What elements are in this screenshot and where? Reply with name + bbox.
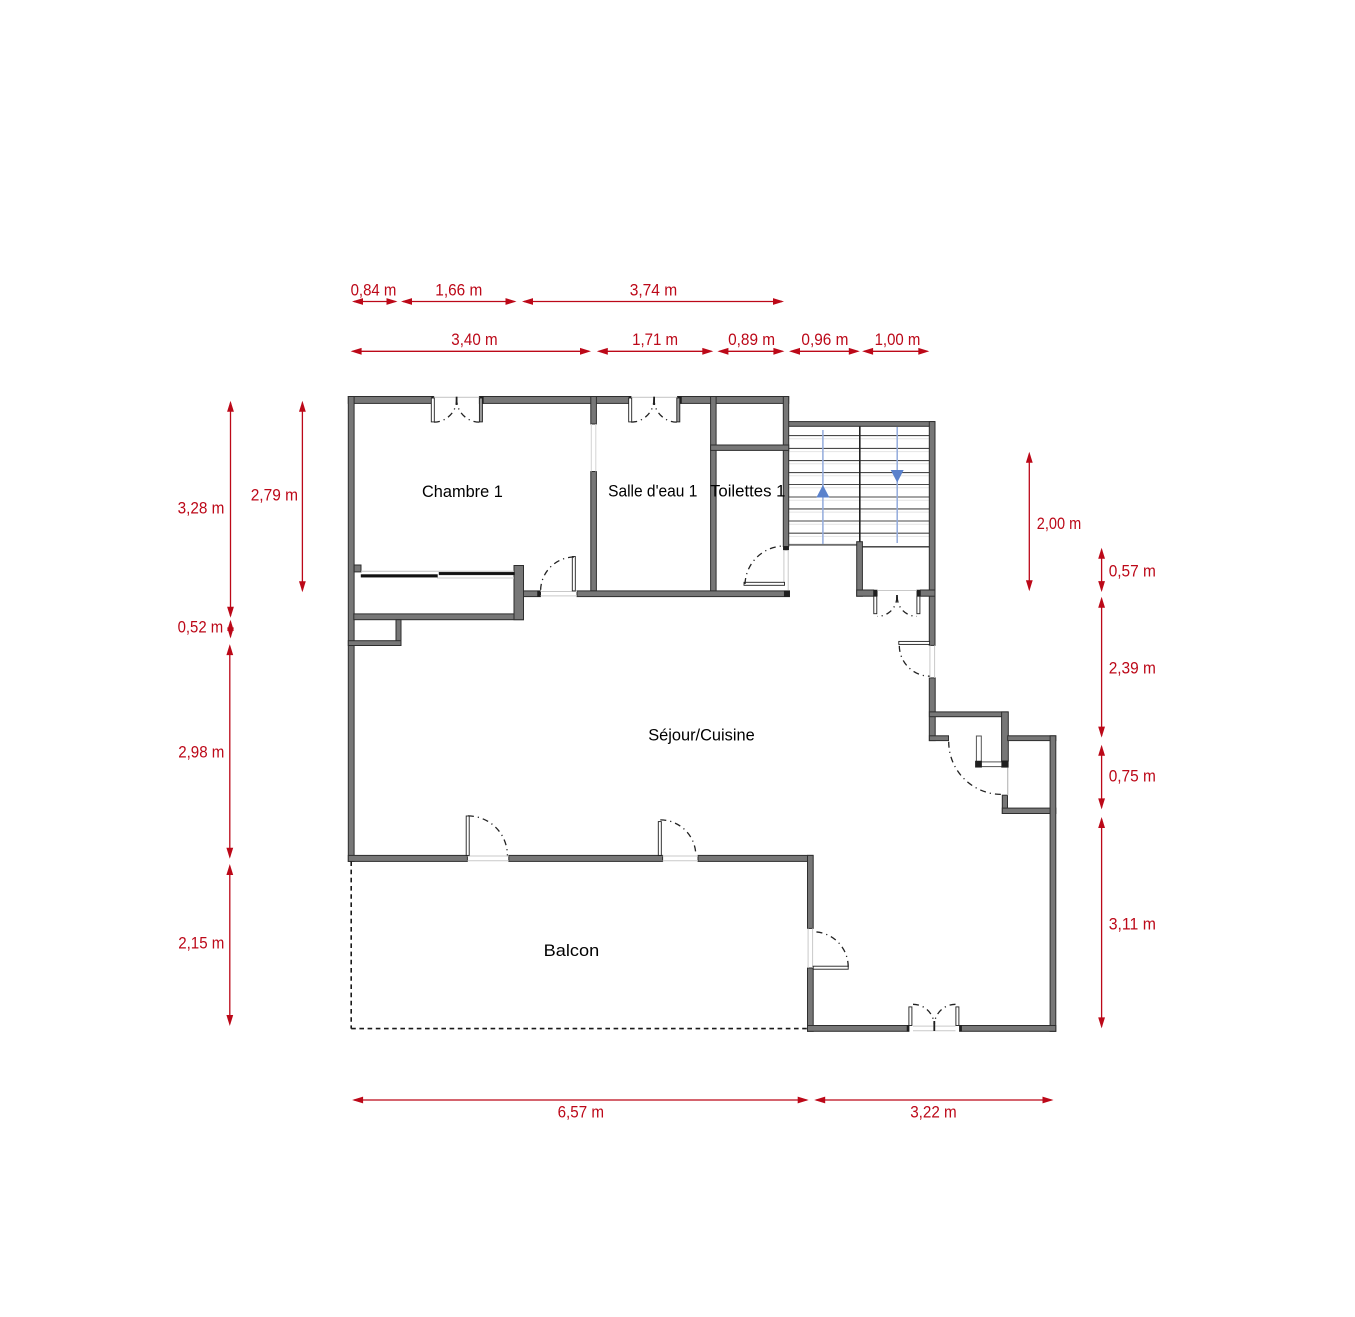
svg-text:2,15 m: 2,15 m [178,935,224,953]
svg-text:6,57 m: 6,57 m [558,1103,604,1121]
svg-text:3,40 m: 3,40 m [451,331,497,349]
svg-text:3,74 m: 3,74 m [630,282,678,300]
svg-text:0,57 m: 0,57 m [1109,563,1156,581]
svg-text:Balcon: Balcon [544,941,600,960]
svg-text:1,71 m: 1,71 m [632,331,678,349]
svg-text:1,66 m: 1,66 m [435,282,482,300]
svg-text:Toilettes 1: Toilettes 1 [710,482,786,501]
svg-text:2,98 m: 2,98 m [178,744,224,762]
svg-text:0,52 m: 0,52 m [178,619,224,637]
svg-text:3,22 m: 3,22 m [910,1103,957,1121]
svg-text:2,79 m: 2,79 m [251,487,298,505]
svg-text:0,75 m: 0,75 m [1109,768,1156,786]
svg-text:0,89 m: 0,89 m [728,331,775,349]
svg-text:Salle d'eau 1: Salle d'eau 1 [608,482,697,501]
svg-text:2,00 m: 2,00 m [1037,515,1081,533]
svg-text:0,84 m: 0,84 m [351,282,397,300]
svg-text:0,96 m: 0,96 m [801,331,848,349]
svg-text:Séjour/Cuisine: Séjour/Cuisine [648,726,755,745]
svg-text:3,28 m: 3,28 m [178,500,225,518]
svg-text:2,39 m: 2,39 m [1109,660,1156,678]
svg-text:1,00 m: 1,00 m [875,331,921,349]
svg-text:3,11 m: 3,11 m [1109,916,1156,934]
svg-text:Chambre 1: Chambre 1 [422,482,503,501]
